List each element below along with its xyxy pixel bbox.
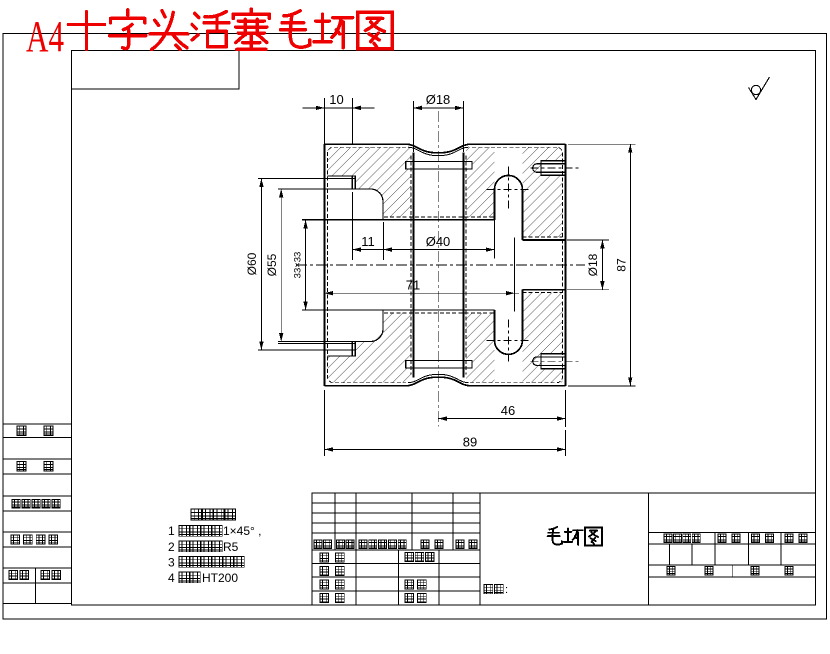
svg-text:Ø18: Ø18 <box>586 253 600 276</box>
svg-text:71: 71 <box>406 278 420 293</box>
svg-text:2: 2 <box>168 540 175 554</box>
svg-text:33×33: 33×33 <box>293 252 304 279</box>
svg-text:A4: A4 <box>26 12 64 61</box>
svg-text:R5: R5 <box>223 540 239 554</box>
svg-text:1×45° ,: 1×45° , <box>223 524 262 538</box>
svg-text:Ø40: Ø40 <box>426 234 451 249</box>
svg-text:89: 89 <box>463 435 477 450</box>
svg-text:1: 1 <box>168 524 175 538</box>
svg-text:Ø55: Ø55 <box>265 253 279 276</box>
svg-text:87: 87 <box>615 258 629 272</box>
svg-text:46: 46 <box>501 403 515 418</box>
svg-text:10: 10 <box>329 92 343 107</box>
svg-text:Ø18: Ø18 <box>426 92 451 107</box>
svg-text:11: 11 <box>361 234 375 249</box>
svg-text:HT200: HT200 <box>202 571 238 585</box>
svg-text::: : <box>505 584 508 596</box>
svg-text:3: 3 <box>168 556 175 570</box>
svg-text:Ø60: Ø60 <box>245 252 259 275</box>
svg-text:4: 4 <box>168 571 175 585</box>
